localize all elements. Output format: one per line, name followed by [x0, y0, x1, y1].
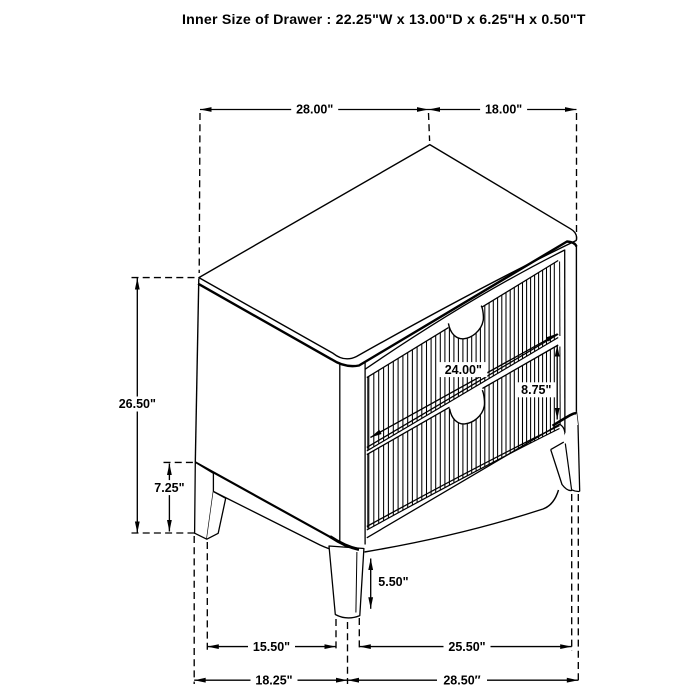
svg-text:26.50": 26.50"	[119, 397, 156, 411]
svg-text:28.50″: 28.50″	[443, 673, 480, 687]
svg-text:25.50": 25.50"	[448, 640, 485, 654]
svg-text:5.50": 5.50"	[378, 575, 408, 589]
svg-text:8.75": 8.75"	[521, 383, 551, 397]
svg-text:15.50": 15.50"	[253, 640, 290, 654]
svg-text:18.25": 18.25"	[255, 673, 292, 687]
svg-text:18.00": 18.00"	[485, 103, 522, 117]
svg-text:28.00": 28.00"	[296, 103, 333, 117]
svg-text:7.25": 7.25"	[154, 481, 184, 495]
svg-text:24.00": 24.00"	[445, 363, 482, 377]
